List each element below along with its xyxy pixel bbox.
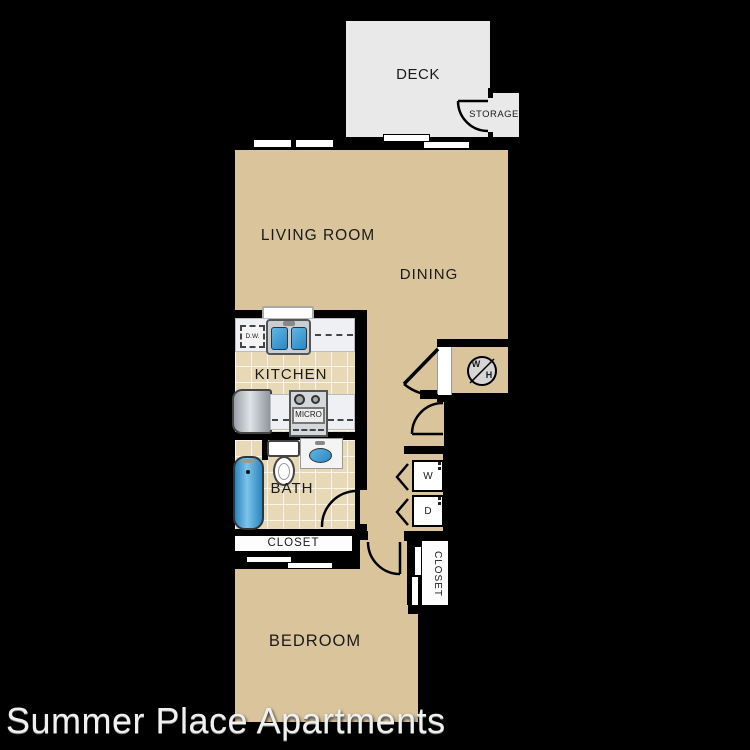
toilet-tank	[267, 440, 300, 457]
patio-slider-panel-2	[423, 141, 470, 149]
bedroom-closet-slider-1	[246, 556, 292, 563]
hall-closet-label: CLOSET	[235, 537, 352, 549]
floor-plan: DECK D.W.	[0, 0, 750, 750]
storage-label: STORAGE	[465, 109, 523, 120]
kitchen-sink-basin-left	[271, 327, 288, 350]
stove-dashes	[293, 429, 324, 431]
hall-upper-floor	[360, 398, 444, 446]
bathtub	[233, 456, 264, 530]
bedroom-doorway-floor	[360, 538, 413, 570]
wall-laundry-right	[443, 446, 454, 536]
wall-entry-nook-top	[437, 339, 515, 347]
closet2-slider-1	[414, 546, 422, 576]
wall-kitchen-right-upper	[355, 310, 367, 354]
living-room-label: LIVING ROOM	[248, 227, 388, 245]
deck-label: DECK	[345, 66, 491, 83]
toilet-bowl-inner	[278, 463, 290, 480]
counter-dashes-bottom-left	[272, 419, 289, 421]
bathtub-drain	[246, 470, 250, 474]
dryer-label: D	[424, 506, 431, 517]
dining-label: DINING	[393, 266, 465, 283]
wall-right-upper	[508, 143, 515, 404]
wall-bedroom-door-stub	[352, 531, 368, 540]
dryer-knob-2	[438, 502, 441, 505]
dishwasher-label: D.W.	[240, 333, 265, 340]
kitchen-label: KITCHEN	[252, 366, 330, 383]
bedroom-closet2-label: CLOSET	[427, 545, 443, 603]
wall-closet-top	[228, 529, 360, 536]
stove-burner-left	[294, 394, 305, 405]
kitchen-faucet-icon	[283, 321, 295, 326]
water-heater-w: W	[470, 359, 482, 369]
bedroom-label: BEDROOM	[243, 632, 387, 651]
dryer-knob-1	[438, 497, 441, 500]
bathtub-faucet-icon	[241, 459, 255, 463]
entry-door-gap	[437, 347, 452, 395]
bath-label: BATH	[267, 480, 317, 497]
living-window-1	[253, 139, 292, 148]
kitchen-sink-basin-right	[291, 327, 307, 350]
wall-bath-right	[355, 432, 367, 490]
water-heater-h: H	[483, 370, 495, 380]
watermark: Summer Place Apartments	[6, 700, 446, 742]
microwave-label: MICRO	[292, 410, 325, 419]
bath-sink	[309, 448, 332, 463]
bath-faucet-icon	[315, 441, 325, 445]
refrigerator	[232, 389, 272, 434]
washer-knob-2	[438, 467, 441, 470]
living-window-2	[295, 139, 334, 148]
bedroom-closet-slider-2	[287, 562, 333, 569]
washer-label: W	[423, 471, 432, 482]
wall-closet2-right	[448, 531, 456, 614]
counter-dashes-top	[315, 334, 353, 336]
closet2-slider-2	[411, 576, 419, 606]
counter-dashes-bottom-right	[328, 419, 353, 421]
stove-burner-right	[311, 395, 320, 404]
washer-knob-1	[438, 462, 441, 465]
